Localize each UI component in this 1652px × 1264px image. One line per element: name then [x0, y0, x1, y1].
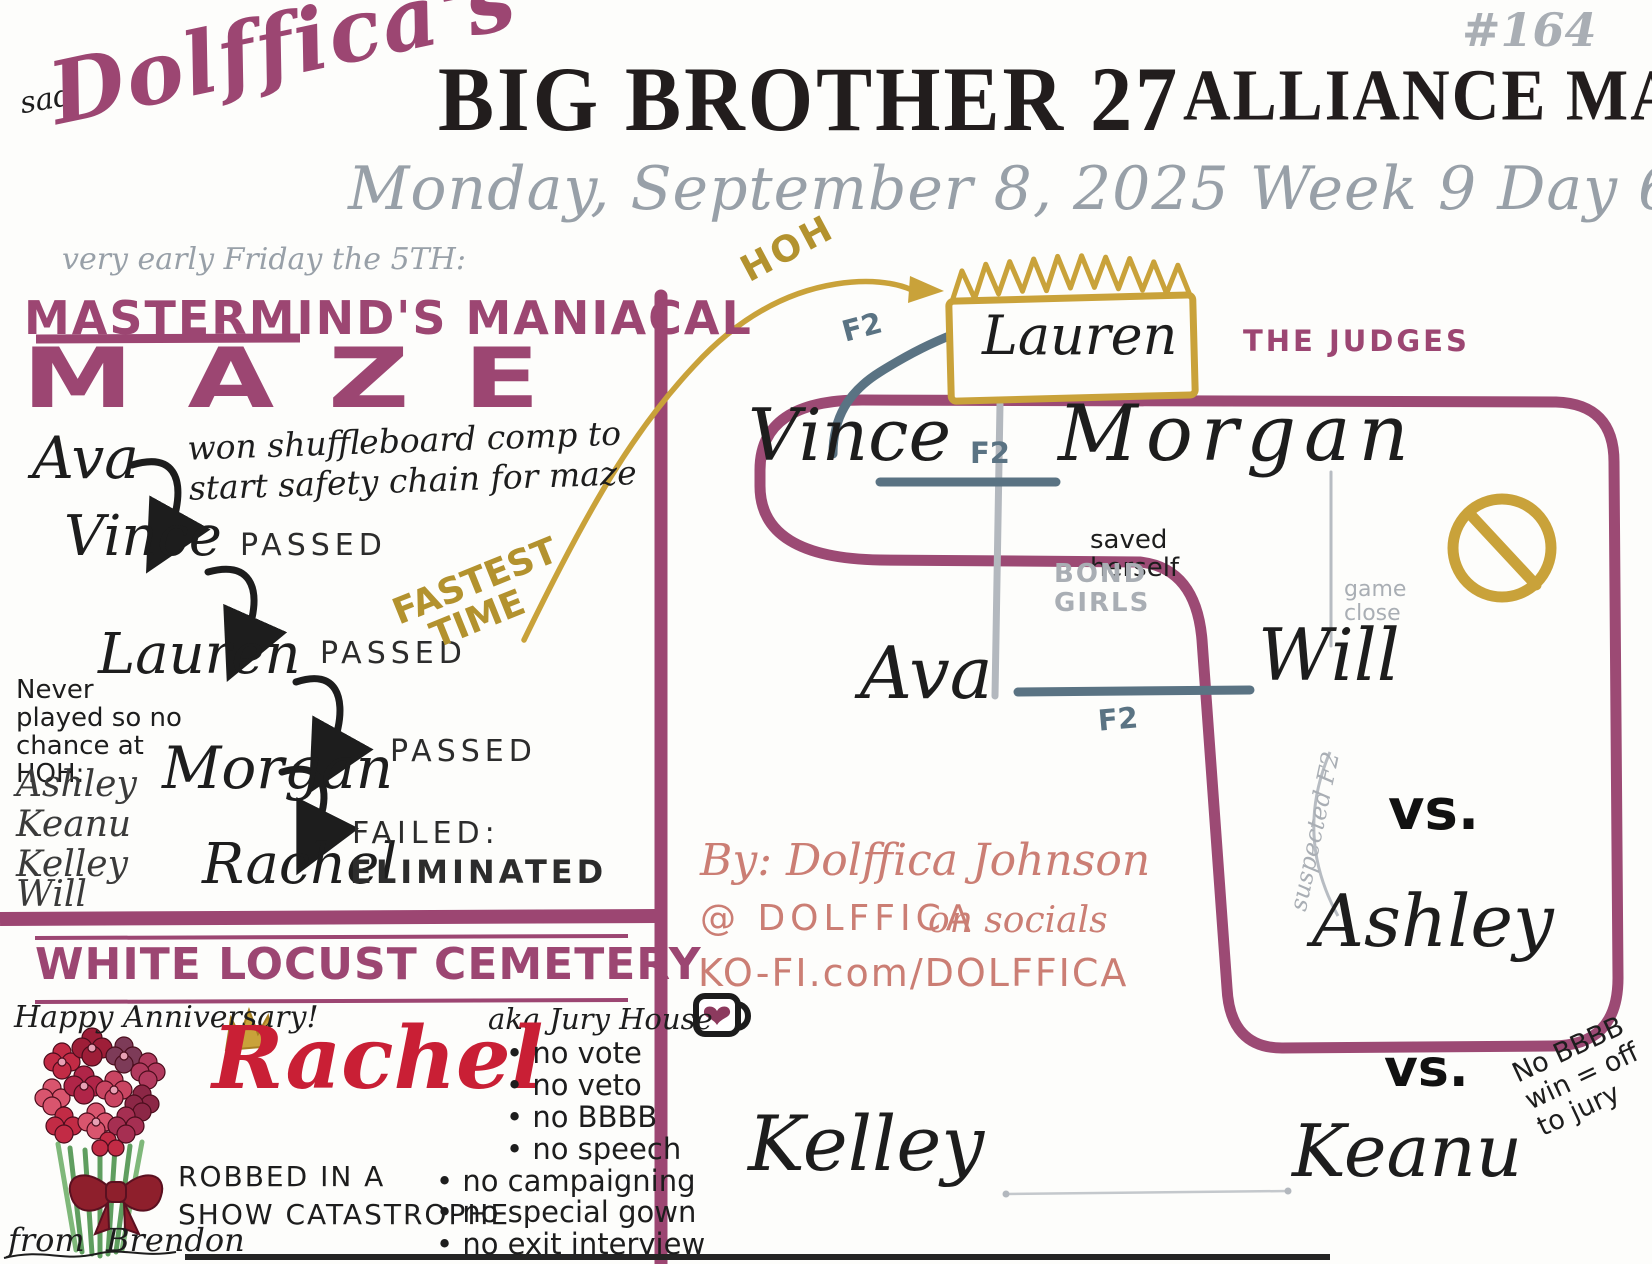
jury-rule: no exit interview [436, 1229, 705, 1261]
never-played-keanu: Keanu [16, 806, 131, 844]
never-played-will: Will [16, 876, 87, 914]
from-label: from [8, 1224, 85, 1258]
bond-girls-line2: GIRLS [1054, 589, 1150, 618]
date-line: Monday, September 8, 2025 Week 9 Day 63 [348, 158, 1652, 221]
houseguest-vince: Vince [748, 398, 951, 474]
jury-rule: no vote [436, 1038, 705, 1070]
houseguest-ava: Ava [860, 636, 993, 712]
page-title-2: ALLIANCE MAP [1183, 58, 1652, 134]
page-title: BIG BROTHER 27 [438, 52, 1180, 149]
hoh-holder-lauren: Lauren [982, 308, 1177, 365]
f2-label-vince-morgan: F2 [970, 438, 1010, 468]
issue-number: #164 [1462, 6, 1597, 54]
saved-line1: saved [1090, 526, 1179, 554]
robbed-line1: ROBBED IN A [178, 1158, 510, 1196]
bond-girls-line1: BOND [1054, 560, 1150, 589]
maze-heading-line2: MAZE [22, 336, 594, 423]
f2-label-ava-will: F2 [1097, 702, 1140, 736]
cemetery-heading: WHITE LOCUST CEMETERY [35, 942, 627, 988]
maze-step-morgan: Morgan [162, 738, 393, 799]
never-played-ashley: Ashley [16, 766, 137, 804]
credit-social-suffix: on socials [928, 902, 1108, 940]
bond-girls-label: BOND GIRLS [1054, 560, 1150, 618]
houseguest-ashley: Ashley [1312, 884, 1554, 960]
jury-rule: no veto [436, 1070, 705, 1102]
houseguest-will: Will [1258, 618, 1400, 694]
game-close-line2: close [1344, 602, 1406, 626]
gray-connectors [995, 404, 1338, 1198]
versus-will-ashley: vs. [1388, 782, 1479, 841]
game-close-line1: game [1344, 578, 1406, 602]
maze-result-morgan: PASSED [390, 736, 537, 768]
maze-result-vince: PASSED [240, 530, 387, 562]
no-symbol-icon [1453, 499, 1551, 597]
judges-label: THE JUDGES [1243, 326, 1470, 356]
versus-ashley-keanu: vs. [1384, 1042, 1469, 1097]
maze-result-rachel: FAILED: [352, 818, 500, 850]
alliance-map-canvas: sad Dolffica's BIG BROTHER 27 ALLIANCE M… [0, 0, 1652, 1264]
houseguest-kelley: Kelley [748, 1104, 984, 1184]
houseguest-morgan: Morgan [1058, 394, 1417, 476]
houseguest-keanu: Keanu [1292, 1114, 1522, 1190]
credit-kofi-link: KO-FI.com/DOLFFICA [698, 954, 1128, 994]
maze-step-vince: Vince [64, 508, 222, 567]
game-close-note: game close [1344, 578, 1406, 626]
credit-by-line: By: Dolffica Johnson [700, 838, 1150, 884]
maze-eliminated-label: ELIMINATED [350, 856, 607, 890]
jury-rule: no BBBB [436, 1102, 705, 1134]
maze-step-ava: Ava [32, 428, 139, 489]
from-name-brendon: Brendon [106, 1224, 245, 1258]
time-note: very early Friday the 5TH: [62, 244, 466, 276]
